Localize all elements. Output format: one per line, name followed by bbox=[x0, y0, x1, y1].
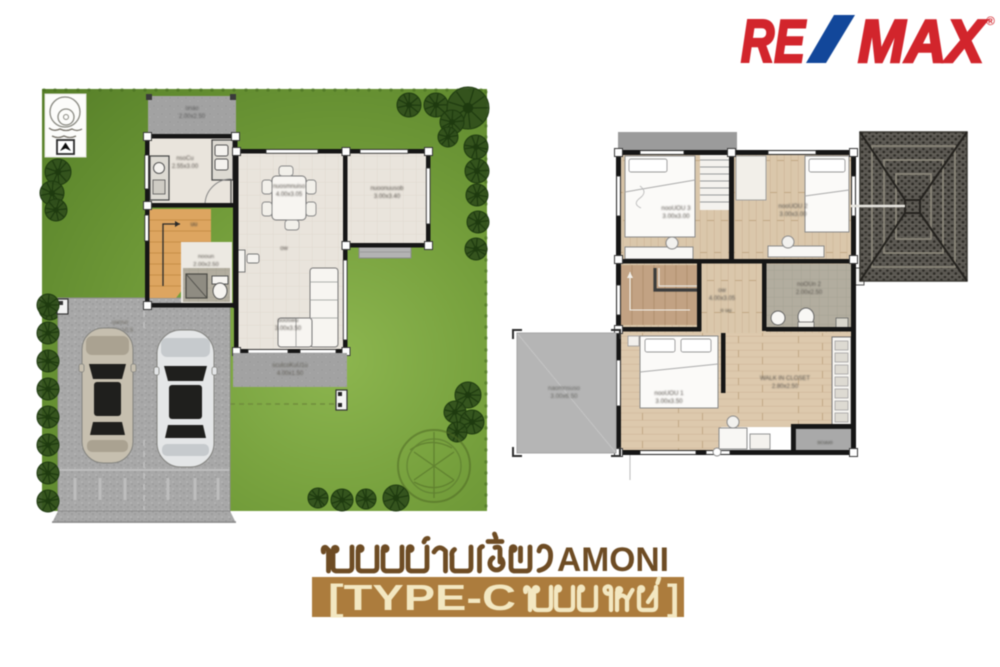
svg-text:WALK IN CLOSET: WALK IN CLOSET bbox=[760, 376, 810, 382]
svg-text:uaoso: uaoso bbox=[112, 320, 129, 326]
svg-text:3.00x3.50: 3.00x3.50 bbox=[655, 398, 683, 405]
svg-text:ow: ow bbox=[280, 246, 288, 252]
svg-text:3.00x3.00: 3.00x3.00 bbox=[662, 213, 690, 220]
svg-text:4.00x1.50: 4.00x1.50 bbox=[277, 371, 304, 377]
svg-text:nuoonuusob: nuoonuusob bbox=[370, 186, 404, 192]
svg-text:2.80x2.50: 2.80x2.50 bbox=[772, 384, 799, 390]
svg-text:nooUOU 1: nooUOU 1 bbox=[654, 390, 684, 397]
svg-text:2.00x2.50: 2.00x2.50 bbox=[193, 262, 218, 268]
svg-text:2.55x3.00: 2.55x3.00 bbox=[172, 164, 199, 170]
svg-text:]: ] bbox=[667, 577, 679, 618]
svg-text:®: ® bbox=[986, 14, 995, 28]
svg-text:4.00x3.05: 4.00x3.05 bbox=[276, 192, 303, 198]
svg-text:AMONI: AMONI bbox=[557, 541, 669, 579]
svg-text:nooUOU 3: nooUOU 3 bbox=[661, 205, 691, 212]
svg-text:onao: onao bbox=[185, 106, 199, 112]
svg-text:uooswu: uooswu bbox=[278, 318, 299, 324]
svg-text:4.00x3.05: 4.00x3.05 bbox=[709, 296, 736, 302]
svg-text:3.00x3.50: 3.00x3.50 bbox=[275, 326, 302, 332]
svg-text:ow: ow bbox=[718, 288, 726, 294]
svg-text:RE: RE bbox=[741, 8, 807, 75]
svg-text:scuuo: scuuo bbox=[817, 440, 832, 446]
svg-text:MAX: MAX bbox=[858, 8, 988, 75]
svg-text:scutcoKuU1u: scutcoKuU1u bbox=[272, 363, 308, 369]
svg-text:uu: uu bbox=[191, 222, 198, 228]
svg-text:2.00x2.50: 2.00x2.50 bbox=[179, 114, 206, 120]
svg-text:naomnsuso: naomnsuso bbox=[548, 385, 581, 392]
svg-text:o uu: o uu bbox=[721, 308, 732, 314]
svg-text:3.00x6.50: 3.00x6.50 bbox=[550, 393, 578, 400]
svg-text:nooun: nooun bbox=[198, 254, 214, 260]
svg-text:noOUn 2: noOUn 2 bbox=[797, 282, 822, 288]
svg-text:nsoCu: nsoCu bbox=[176, 156, 193, 162]
svg-text:3.00x3.40: 3.00x3.40 bbox=[374, 194, 401, 200]
svg-text:nooUOU 2: nooUOU 2 bbox=[778, 203, 808, 210]
svg-text:nuosmnuiso: nuosmnuiso bbox=[273, 184, 306, 190]
svg-text:2.00x2.50: 2.00x2.50 bbox=[796, 290, 823, 296]
svg-text:3.00x3.00: 3.00x3.00 bbox=[779, 211, 807, 218]
svg-text:[TYPE-C: [TYPE-C bbox=[328, 577, 516, 618]
